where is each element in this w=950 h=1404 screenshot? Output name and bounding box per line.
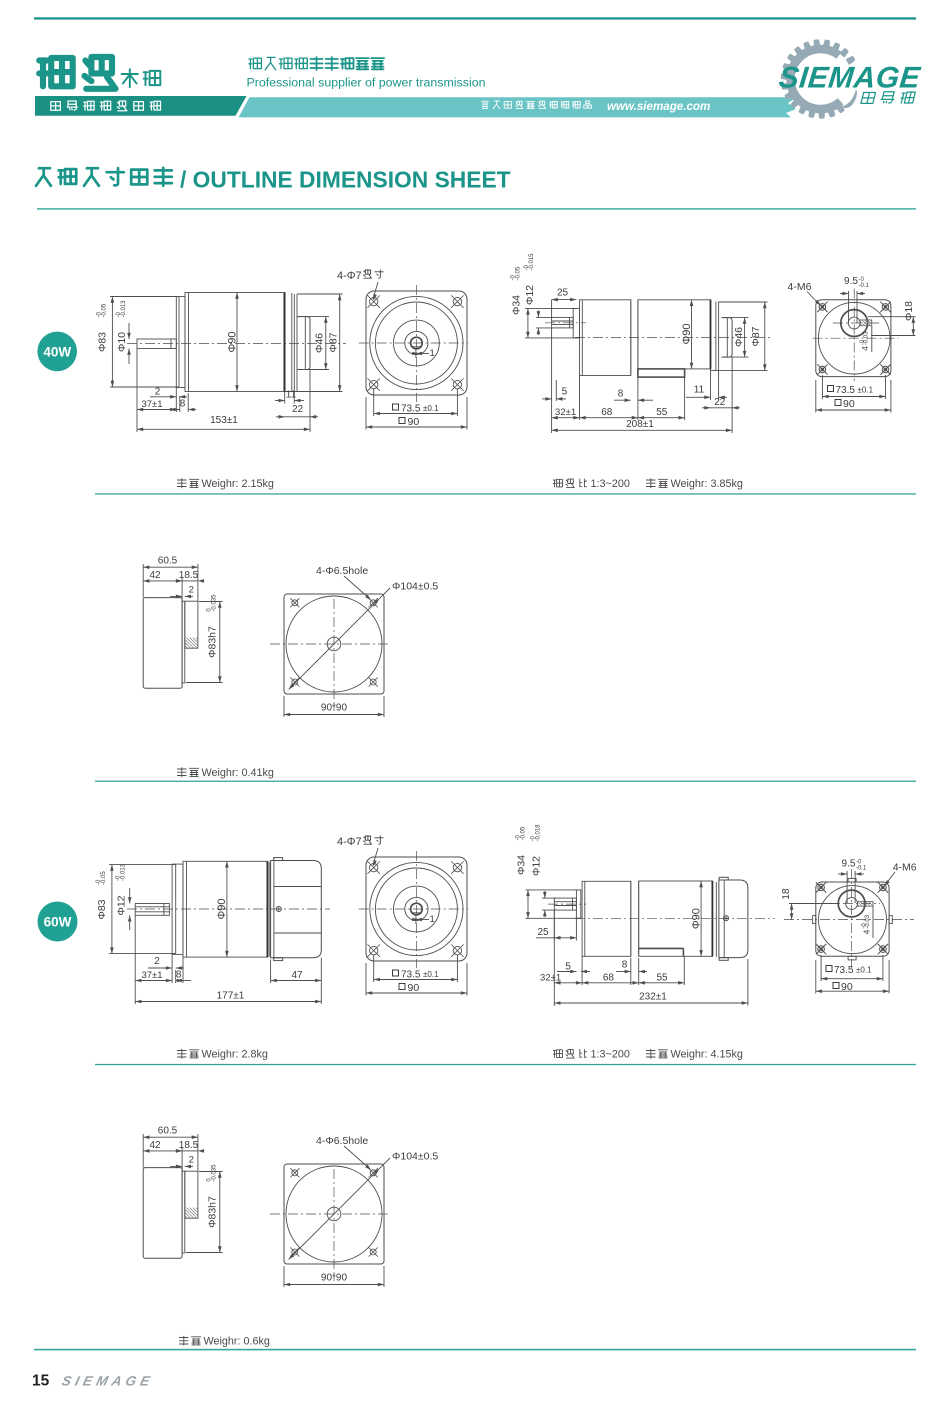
svg-text:2: 2	[154, 956, 160, 967]
svg-text:32±1: 32±1	[555, 407, 576, 418]
svg-text:60W: 60W	[44, 914, 72, 929]
svg-text:153±1: 153±1	[210, 415, 238, 426]
svg-text:-0.018: -0.018	[535, 824, 541, 842]
svg-text:8: 8	[618, 388, 624, 399]
svg-text:Φ87: Φ87	[750, 326, 762, 346]
svg-text:42: 42	[149, 570, 161, 581]
svg-text:42: 42	[149, 1140, 161, 1151]
svg-text:Φ104±0.5: Φ104±0.5	[392, 1151, 438, 1163]
svg-text:4: 4	[862, 929, 872, 934]
svg-text:11: 11	[286, 389, 297, 400]
svg-text:9.5: 9.5	[844, 276, 858, 287]
svg-text:±0.1: ±0.1	[858, 386, 874, 395]
svg-text:73.5: 73.5	[401, 969, 421, 980]
svg-text:90*90: 90*90	[321, 1273, 348, 1284]
svg-text:-0.013: -0.013	[121, 300, 127, 318]
svg-text:SIEMAGE: SIEMAGE	[60, 1374, 155, 1389]
svg-text:8: 8	[180, 399, 186, 410]
svg-text:15: 15	[32, 1373, 50, 1390]
svg-text:Φ12: Φ12	[116, 895, 128, 915]
svg-text:11: 11	[694, 384, 705, 395]
svg-text:55: 55	[656, 407, 668, 418]
svg-text:Φ12: Φ12	[524, 285, 536, 305]
svg-text:8: 8	[622, 960, 628, 971]
svg-text:-0.035: -0.035	[211, 1164, 217, 1182]
svg-text:5: 5	[562, 386, 568, 397]
svg-text:-0.03: -0.03	[865, 914, 871, 928]
svg-text:90*90: 90*90	[321, 703, 348, 714]
svg-text:Φ90: Φ90	[216, 898, 228, 919]
svg-text:SIEMAGE: SIEMAGE	[777, 62, 922, 95]
svg-text:4-M6: 4-M6	[788, 281, 812, 293]
svg-text:9.5: 9.5	[842, 859, 856, 870]
svg-text:Weighr: 4.15kg: Weighr: 4.15kg	[671, 1049, 743, 1061]
svg-text:Weighr: 0.41kg: Weighr: 0.41kg	[202, 767, 274, 779]
svg-text:-0.05: -0.05	[520, 826, 526, 840]
svg-text:73.5: 73.5	[401, 403, 421, 414]
svg-text:18: 18	[781, 888, 792, 900]
svg-text:2: 2	[189, 1154, 194, 1165]
svg-text:-0.013: -0.013	[120, 863, 126, 881]
svg-text:4-Φ6.5hole: 4-Φ6.5hole	[316, 565, 368, 577]
svg-text:4-M6: 4-M6	[893, 862, 917, 874]
svg-text:Weighr: 2.8kg: Weighr: 2.8kg	[202, 1049, 268, 1061]
svg-text:4-Φ7: 4-Φ7	[337, 836, 362, 848]
svg-text:22: 22	[292, 404, 304, 415]
svg-text:32±1: 32±1	[540, 972, 561, 983]
svg-text:Φ46: Φ46	[314, 333, 326, 353]
svg-text:-0.1: -0.1	[859, 283, 870, 289]
svg-text:73.5: 73.5	[836, 385, 856, 396]
svg-text:Φ34: Φ34	[511, 295, 523, 315]
svg-text:Φ83: Φ83	[96, 899, 108, 919]
svg-text:40W: 40W	[43, 344, 71, 359]
svg-text:55: 55	[656, 973, 668, 984]
svg-text:60.5: 60.5	[158, 1126, 178, 1137]
svg-text:Φ87: Φ87	[328, 332, 340, 352]
svg-text:Weighr: 3.85kg: Weighr: 3.85kg	[671, 478, 743, 490]
svg-text:Φ10: Φ10	[116, 332, 128, 352]
svg-text:-0.05: -0.05	[515, 266, 521, 280]
svg-text:25: 25	[537, 927, 549, 938]
svg-text:2: 2	[155, 387, 161, 398]
svg-text:4-Φ7: 4-Φ7	[337, 270, 362, 282]
svg-text:Weighr: 0.6kg: Weighr: 0.6kg	[204, 1336, 270, 1348]
svg-text:90: 90	[408, 416, 420, 428]
svg-text:4: 4	[860, 346, 870, 351]
svg-text:25: 25	[557, 288, 569, 299]
svg-text:-0.03: -0.03	[864, 331, 870, 345]
svg-text:60.5: 60.5	[158, 556, 178, 567]
svg-text:www.siemage.com: www.siemage.com	[607, 100, 710, 113]
svg-text:-0.015: -0.015	[529, 253, 535, 271]
svg-text:Weighr: 2.15kg: Weighr: 2.15kg	[202, 478, 274, 490]
svg-text:68: 68	[603, 973, 615, 984]
svg-text:90: 90	[843, 398, 855, 410]
svg-text:177±1: 177±1	[217, 990, 245, 1001]
svg-text:47: 47	[291, 970, 303, 981]
svg-text:Professional supplier of power: Professional supplier of power transmiss…	[247, 76, 486, 90]
svg-text:1:3~200: 1:3~200	[591, 1049, 630, 1061]
svg-text:2: 2	[189, 584, 194, 595]
svg-text:-0.05: -0.05	[101, 303, 107, 317]
svg-text:68: 68	[601, 407, 613, 418]
svg-text:Φ83h7: Φ83h7	[207, 1196, 219, 1228]
svg-text:22: 22	[714, 397, 726, 408]
svg-text:Φ12: Φ12	[531, 856, 543, 876]
svg-text:-0.1: -0.1	[856, 866, 867, 872]
svg-text:±0.1: ±0.1	[423, 404, 439, 413]
svg-text:232±1: 232±1	[639, 991, 667, 1002]
svg-text:Φ83h7: Φ83h7	[207, 626, 219, 658]
svg-text:Φ90: Φ90	[226, 331, 238, 352]
svg-text:Φ83: Φ83	[97, 332, 109, 352]
svg-text:-0.035: -0.035	[211, 594, 217, 612]
svg-text:37±1: 37±1	[141, 970, 162, 981]
svg-text:37±1: 37±1	[141, 399, 162, 410]
svg-text:73.5: 73.5	[834, 965, 854, 976]
svg-text:Φ18: Φ18	[903, 301, 915, 321]
svg-text:1: 1	[430, 914, 435, 925]
svg-text:4-Φ6.5hole: 4-Φ6.5hole	[316, 1135, 368, 1147]
svg-text:/ OUTLINE DIMENSION SHEET: / OUTLINE DIMENSION SHEET	[180, 166, 511, 192]
svg-text:1:3~200: 1:3~200	[591, 478, 630, 490]
svg-text:Φ46: Φ46	[733, 327, 745, 347]
svg-text:Φ34: Φ34	[516, 855, 528, 875]
svg-text:208±1: 208±1	[626, 419, 654, 430]
svg-text:Φ104±0.5: Φ104±0.5	[392, 581, 438, 593]
svg-text:1: 1	[430, 348, 435, 359]
svg-text:Φ90: Φ90	[690, 908, 702, 929]
svg-text:Φ90: Φ90	[681, 323, 693, 344]
svg-text:±0.1: ±0.1	[423, 970, 439, 979]
svg-text:-0.05: -0.05	[101, 871, 107, 885]
svg-text:±0.1: ±0.1	[856, 966, 872, 975]
svg-text:90: 90	[408, 982, 420, 994]
